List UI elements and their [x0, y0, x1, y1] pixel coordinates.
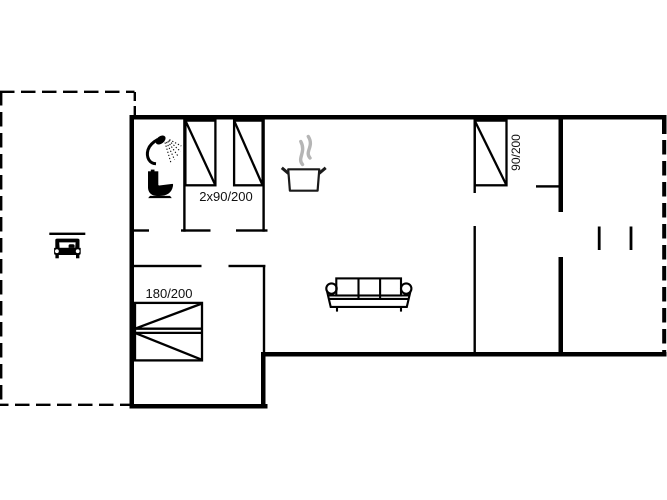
svg-text:180/200: 180/200: [146, 286, 193, 301]
svg-text:2x90/200: 2x90/200: [199, 189, 253, 204]
svg-text:90/200: 90/200: [509, 134, 523, 171]
